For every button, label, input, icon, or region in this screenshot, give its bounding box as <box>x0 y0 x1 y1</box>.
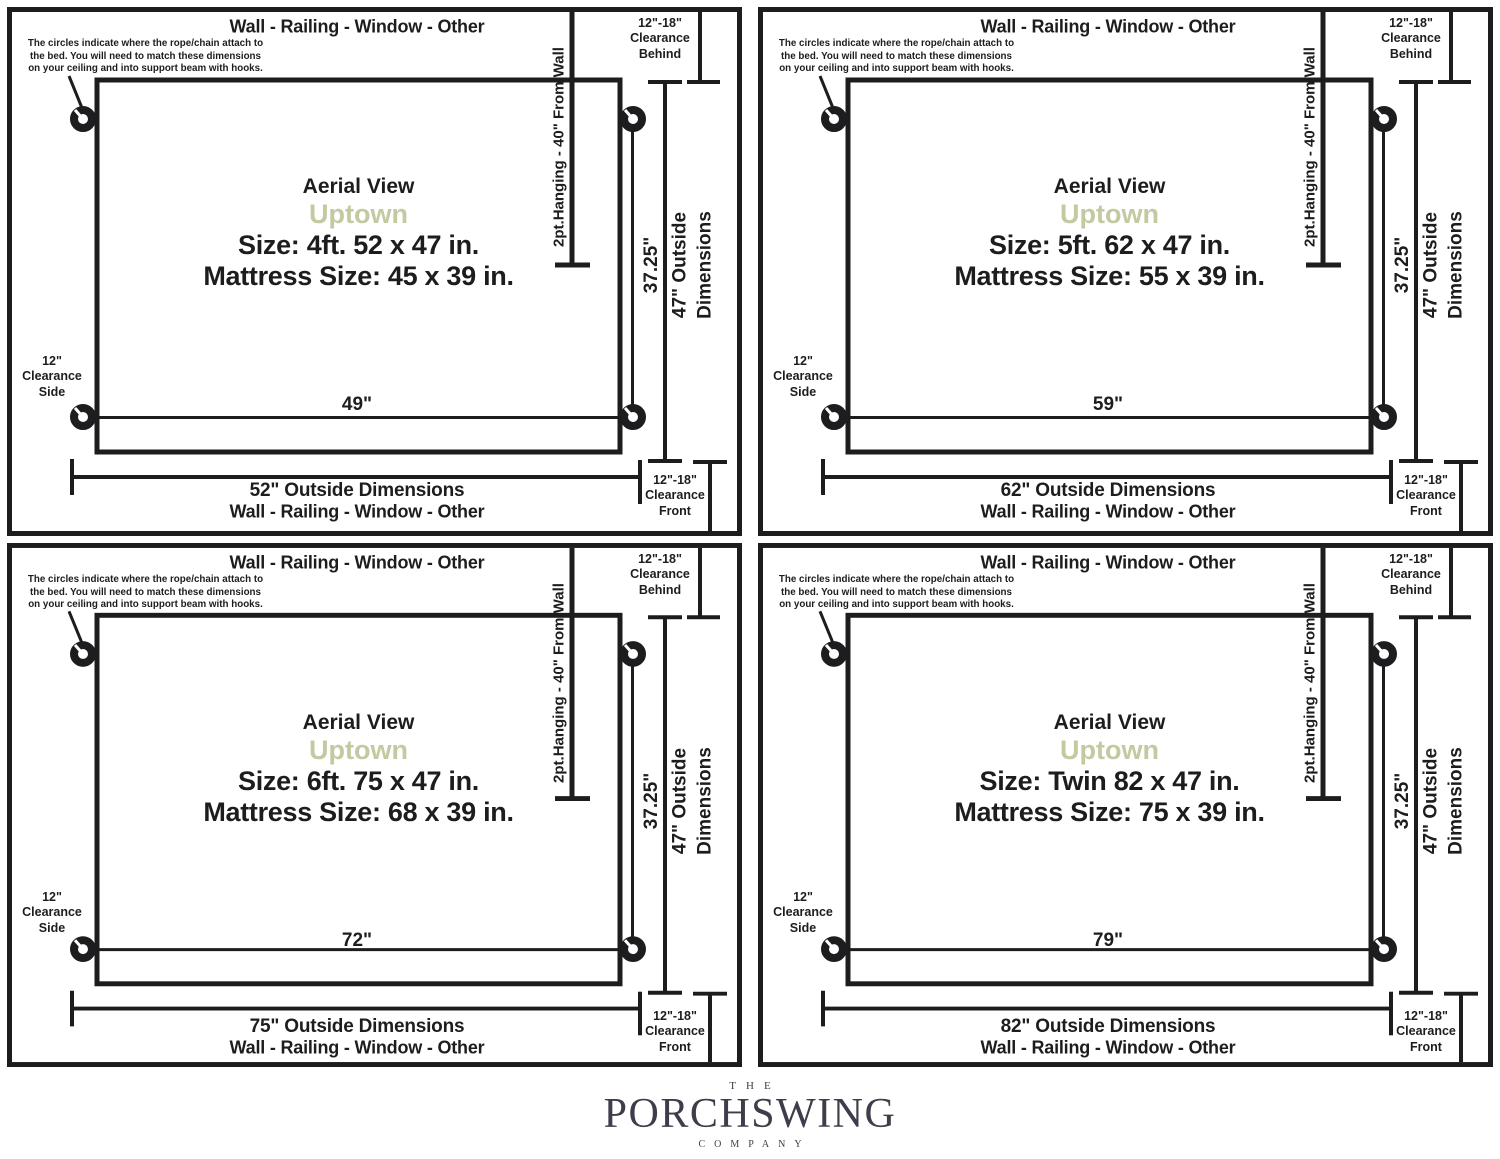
wall-label-bottom: Wall - Railing - Window - Other <box>230 1038 485 1059</box>
clearance-line: Clearance <box>773 369 833 384</box>
dimension-sheet: Wall - Railing - Window - Other The circ… <box>0 0 1500 1159</box>
note-pointer-line <box>820 76 833 108</box>
clearance-front-label: 12"-18" Clearance Front <box>1396 473 1456 519</box>
inner-depth-label: 37.25" <box>641 773 663 830</box>
size-label: Size: 6ft. 75 x 47 in. <box>97 766 620 797</box>
mattress-size-label: Mattress Size: 68 x 39 in. <box>97 797 620 828</box>
rope-note-line: on your ceiling and into support beam wi… <box>13 599 278 612</box>
aerial-view-label: Aerial View <box>97 175 620 199</box>
outside-depth-line1: 47" Outside <box>1419 211 1444 319</box>
inner-width-label: 49" <box>342 394 372 416</box>
hanging-dim-label: 2pt.Hanging - 40" From Wall <box>551 583 568 783</box>
diagram-panel: Wall - Railing - Window - Other The circ… <box>758 7 1493 536</box>
clearance-behind-label: 12"-18" Clearance Behind <box>630 552 690 598</box>
aerial-view-label: Aerial View <box>848 175 1371 199</box>
clearance-line: Front <box>645 504 705 519</box>
outside-depth-label: 47" Outside Dimensions <box>668 747 717 855</box>
wall-label-bottom: Wall - Railing - Window - Other <box>981 502 1236 523</box>
clearance-line: Clearance <box>1381 31 1441 46</box>
outside-width-label: 75" Outside Dimensions <box>250 1016 465 1038</box>
clearance-line: Behind <box>630 47 690 62</box>
size-label: Size: Twin 82 x 47 in. <box>848 766 1371 797</box>
rope-note-line: on your ceiling and into support beam wi… <box>764 63 1029 76</box>
clearance-line: 12" <box>773 890 833 905</box>
note-pointer-line <box>820 611 833 643</box>
model-name: Uptown <box>848 199 1371 230</box>
clearance-line: Behind <box>1381 583 1441 598</box>
outside-width-label: 52" Outside Dimensions <box>250 480 465 502</box>
diagram-panel: Wall - Railing - Window - Other The circ… <box>758 543 1493 1067</box>
clearance-line: Clearance <box>645 1024 705 1039</box>
hanging-dim-label: 2pt.Hanging - 40" From Wall <box>551 47 568 247</box>
clearance-front-label: 12"-18" Clearance Front <box>645 1009 705 1055</box>
clearance-line: Clearance <box>1396 488 1456 503</box>
inner-depth-label: 37.25" <box>641 237 663 294</box>
inner-depth-label: 37.25" <box>1392 237 1414 294</box>
outside-depth-label: 47" Outside Dimensions <box>1419 211 1468 319</box>
clearance-line: Clearance <box>630 31 690 46</box>
outside-depth-line1: 47" Outside <box>1419 747 1444 855</box>
rope-note-line: The circles indicate where the rope/chai… <box>764 38 1029 51</box>
clearance-line: Clearance <box>1396 1024 1456 1039</box>
outside-depth-line1: 47" Outside <box>668 747 693 855</box>
inner-width-label: 72" <box>342 930 372 952</box>
wall-label-top: Wall - Railing - Window - Other <box>230 17 485 38</box>
logo-company: COMPANY <box>604 1139 897 1150</box>
clearance-line: Side <box>22 921 82 936</box>
rope-note-line: The circles indicate where the rope/chai… <box>13 38 278 51</box>
outside-depth-line2: Dimensions <box>693 747 718 855</box>
clearance-line: Side <box>773 385 833 400</box>
hanging-dim-label: 2pt.Hanging - 40" From Wall <box>1302 583 1319 783</box>
inner-width-label: 79" <box>1093 930 1123 952</box>
outside-depth-line2: Dimensions <box>1444 747 1469 855</box>
clearance-line: 12"-18" <box>1381 16 1441 31</box>
clearance-side-label: 12" Clearance Side <box>773 354 833 400</box>
brand-logo: THE PORCHSWING COMPANY <box>604 1080 897 1150</box>
rope-note: The circles indicate where the rope/chai… <box>13 574 278 612</box>
model-name: Uptown <box>97 199 620 230</box>
model-name: Uptown <box>97 735 620 766</box>
clearance-line: Front <box>1396 504 1456 519</box>
clearance-line: Front <box>645 1040 705 1055</box>
clearance-front-label: 12"-18" Clearance Front <box>645 473 705 519</box>
clearance-line: 12"-18" <box>645 473 705 488</box>
inner-width-label: 59" <box>1093 394 1123 416</box>
rope-note-line: the bed. You will need to match these di… <box>764 51 1029 64</box>
outside-width-label: 62" Outside Dimensions <box>1001 480 1216 502</box>
note-pointer-line <box>69 76 82 108</box>
rope-note: The circles indicate where the rope/chai… <box>764 38 1029 76</box>
clearance-side-label: 12" Clearance Side <box>22 354 82 400</box>
rope-note: The circles indicate where the rope/chai… <box>13 38 278 76</box>
mattress-size-label: Mattress Size: 75 x 39 in. <box>848 797 1371 828</box>
clearance-side-label: 12" Clearance Side <box>773 890 833 936</box>
mattress-size-label: Mattress Size: 55 x 39 in. <box>848 261 1371 292</box>
clearance-line: Clearance <box>645 488 705 503</box>
panels-grid: Wall - Railing - Window - Other The circ… <box>0 0 1500 1159</box>
clearance-line: Side <box>773 921 833 936</box>
rope-note-line: the bed. You will need to match these di… <box>764 587 1029 600</box>
clearance-line: 12"-18" <box>1396 473 1456 488</box>
wall-label-top: Wall - Railing - Window - Other <box>981 553 1236 574</box>
outside-depth-label: 47" Outside Dimensions <box>668 211 717 319</box>
clearance-line: 12" <box>22 890 82 905</box>
clearance-line: 12"-18" <box>1396 1009 1456 1024</box>
clearance-line: 12"-18" <box>630 16 690 31</box>
outside-depth-label: 47" Outside Dimensions <box>1419 747 1468 855</box>
clearance-line: Clearance <box>22 905 82 920</box>
clearance-line: 12" <box>773 354 833 369</box>
clearance-line: 12" <box>22 354 82 369</box>
rope-note-line: on your ceiling and into support beam wi… <box>13 63 278 76</box>
rope-note-line: The circles indicate where the rope/chai… <box>13 574 278 587</box>
clearance-front-label: 12"-18" Clearance Front <box>1396 1009 1456 1055</box>
clearance-line: Behind <box>1381 47 1441 62</box>
bed-info: Aerial View Uptown Size: Twin 82 x 47 in… <box>848 711 1371 828</box>
rope-note: The circles indicate where the rope/chai… <box>764 574 1029 612</box>
clearance-line: Clearance <box>1381 567 1441 582</box>
wall-label-bottom: Wall - Railing - Window - Other <box>230 502 485 523</box>
bed-info: Aerial View Uptown Size: 4ft. 52 x 47 in… <box>97 175 620 292</box>
clearance-behind-label: 12"-18" Clearance Behind <box>630 16 690 62</box>
hanging-dim-label: 2pt.Hanging - 40" From Wall <box>1302 47 1319 247</box>
clearance-line: Clearance <box>773 905 833 920</box>
clearance-line: 12"-18" <box>1381 552 1441 567</box>
note-pointer-line <box>69 611 82 643</box>
outside-width-label: 82" Outside Dimensions <box>1001 1016 1216 1038</box>
wall-label-top: Wall - Railing - Window - Other <box>981 17 1236 38</box>
diagram-panel: Wall - Railing - Window - Other The circ… <box>7 7 742 536</box>
model-name: Uptown <box>848 735 1371 766</box>
logo-name: PORCHSWING <box>604 1093 897 1136</box>
rope-note-line: the bed. You will need to match these di… <box>13 51 278 64</box>
outside-depth-line1: 47" Outside <box>668 211 693 319</box>
size-label: Size: 5ft. 62 x 47 in. <box>848 230 1371 261</box>
clearance-line: Clearance <box>630 567 690 582</box>
rope-note-line: the bed. You will need to match these di… <box>13 587 278 600</box>
outside-depth-line2: Dimensions <box>1444 211 1469 319</box>
mattress-size-label: Mattress Size: 45 x 39 in. <box>97 261 620 292</box>
wall-label-top: Wall - Railing - Window - Other <box>230 553 485 574</box>
clearance-line: 12"-18" <box>645 1009 705 1024</box>
diagram-panel: Wall - Railing - Window - Other The circ… <box>7 543 742 1067</box>
clearance-line: Front <box>1396 1040 1456 1055</box>
wall-label-bottom: Wall - Railing - Window - Other <box>981 1038 1236 1059</box>
clearance-line: Clearance <box>22 369 82 384</box>
aerial-view-label: Aerial View <box>97 711 620 735</box>
clearance-line: 12"-18" <box>630 552 690 567</box>
clearance-line: Behind <box>630 583 690 598</box>
rope-note-line: on your ceiling and into support beam wi… <box>764 599 1029 612</box>
clearance-line: Side <box>22 385 82 400</box>
bed-info: Aerial View Uptown Size: 6ft. 75 x 47 in… <box>97 711 620 828</box>
clearance-side-label: 12" Clearance Side <box>22 890 82 936</box>
size-label: Size: 4ft. 52 x 47 in. <box>97 230 620 261</box>
clearance-behind-label: 12"-18" Clearance Behind <box>1381 16 1441 62</box>
inner-depth-label: 37.25" <box>1392 773 1414 830</box>
rope-note-line: The circles indicate where the rope/chai… <box>764 574 1029 587</box>
aerial-view-label: Aerial View <box>848 711 1371 735</box>
outside-depth-line2: Dimensions <box>693 211 718 319</box>
clearance-behind-label: 12"-18" Clearance Behind <box>1381 552 1441 598</box>
bed-info: Aerial View Uptown Size: 5ft. 62 x 47 in… <box>848 175 1371 292</box>
